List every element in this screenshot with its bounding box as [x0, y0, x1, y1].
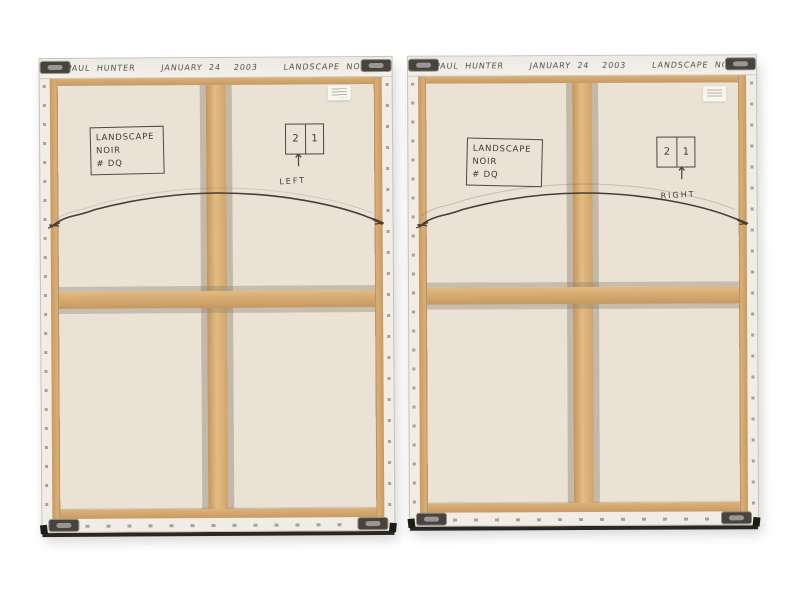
corner-bracket-icon [726, 58, 755, 69]
sticker-fine-print [707, 89, 722, 98]
staples-right-edge [750, 81, 755, 506]
corner-bracket-icon [358, 518, 387, 529]
top-edge-strip: PAUL HUNTER JANUARY 24 2003 LANDSCAPE NO… [40, 57, 392, 79]
title-label-box: LANDSCAPE NOIR # DQ [90, 126, 165, 176]
canvas-back-right: PAUL HUNTER JANUARY 24 2003 LANDSCAPE NO… [407, 54, 759, 527]
corner-shadow [389, 523, 397, 533]
stretcher-bar-right [374, 76, 385, 517]
title-label-box: LANDSCAPE NOIR # DQ [466, 137, 543, 187]
staples-right-edge [386, 83, 392, 512]
stretcher-crossbar-horizontal [59, 285, 375, 314]
title-line: # DQ [96, 157, 158, 171]
title-line: # DQ [472, 169, 536, 184]
corner-bracket-icon [722, 512, 751, 523]
arrow-up-icon: ↑ [292, 152, 305, 169]
title-line: LANDSCAPE [96, 131, 158, 145]
orientation-caption: LEFT [279, 176, 306, 187]
sticker-fine-print [332, 88, 347, 97]
canvas-back-left: PAUL HUNTER JANUARY 24 2003 LANDSCAPE NO… [39, 56, 396, 533]
photo-two-canvas-backs: PAUL HUNTER JANUARY 24 2003 LANDSCAPE NO… [0, 0, 800, 600]
corner-shadow [408, 518, 416, 528]
arrow-up-icon: ↑ [675, 165, 688, 182]
bar-shadow [427, 303, 739, 309]
staples-bottom-edge [432, 517, 736, 521]
bar-wood [427, 286, 739, 304]
top-edge-strip: PAUL HUNTER JANUARY 24 2003 LANDSCAPE NO… [408, 55, 756, 77]
corner-shadow [753, 517, 761, 527]
artist-inscription: PAUL HUNTER JANUARY 24 2003 LANDSCAPE NO… [66, 58, 361, 77]
printed-sticker [703, 86, 726, 101]
corner-bracket-icon [41, 62, 70, 73]
printed-sticker [328, 85, 351, 100]
bar-shadow [59, 307, 375, 314]
staples-bottom-edge [64, 523, 372, 528]
corner-bracket-icon [409, 60, 438, 71]
staples-left-edge [411, 83, 416, 508]
diagram-cell-right: 1 [306, 124, 323, 153]
corner-bracket-icon [362, 60, 391, 71]
artist-inscription: PAUL HUNTER JANUARY 24 2003 LANDSCAPE NO… [434, 56, 725, 74]
stretcher-bar-right [738, 74, 748, 511]
bar-wood [59, 290, 375, 309]
corner-bracket-icon [417, 514, 446, 525]
staples-left-edge [43, 85, 49, 514]
stretcher-bar-bottom [428, 502, 740, 512]
stretcher-bar-bottom [60, 508, 376, 519]
stretcher-crossbar-horizontal [427, 281, 739, 309]
corner-shadow [40, 525, 48, 535]
corner-bracket-icon [49, 520, 78, 531]
